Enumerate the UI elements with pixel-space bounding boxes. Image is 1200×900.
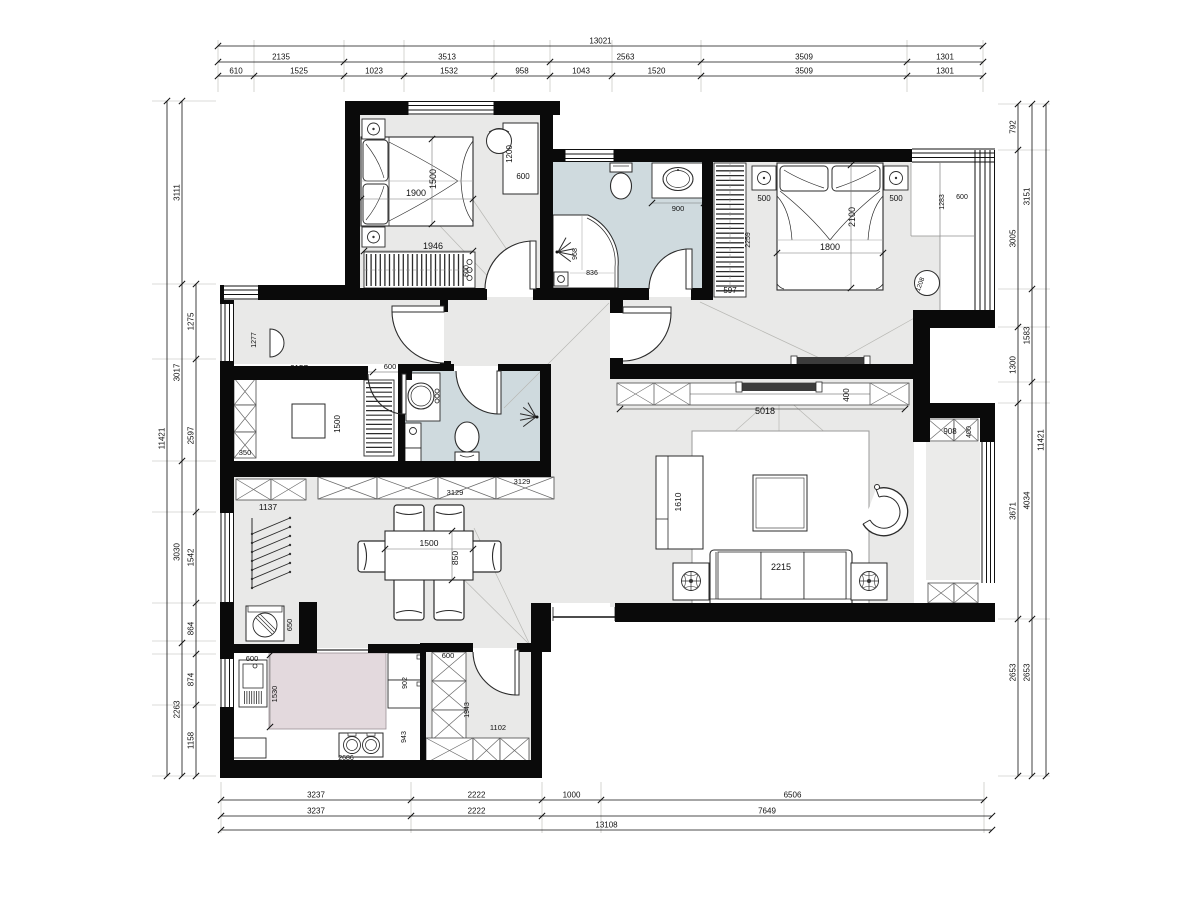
svg-text:6506: 6506 <box>784 791 802 800</box>
svg-text:3509: 3509 <box>795 67 813 76</box>
svg-text:11421: 11421 <box>158 427 167 449</box>
svg-text:5018: 5018 <box>755 406 775 416</box>
svg-text:3017: 3017 <box>173 363 182 381</box>
svg-text:600: 600 <box>956 194 968 201</box>
svg-text:500: 500 <box>889 194 903 203</box>
svg-text:1301: 1301 <box>936 67 954 76</box>
svg-text:3671: 3671 <box>1009 502 1018 520</box>
svg-text:850: 850 <box>450 551 460 565</box>
svg-text:2215: 2215 <box>771 562 791 572</box>
svg-text:11421: 11421 <box>1037 429 1046 451</box>
svg-text:2653: 2653 <box>1009 663 1018 681</box>
svg-text:3237: 3237 <box>307 791 325 800</box>
svg-text:650: 650 <box>285 619 294 632</box>
svg-text:597: 597 <box>723 286 737 295</box>
svg-text:1583: 1583 <box>1023 326 1032 344</box>
svg-text:864: 864 <box>187 621 196 635</box>
svg-text:2135: 2135 <box>272 53 290 62</box>
svg-text:3151: 3151 <box>1023 187 1032 205</box>
svg-text:902: 902 <box>402 677 409 689</box>
svg-text:1043: 1043 <box>572 67 590 76</box>
svg-text:1000: 1000 <box>563 791 581 800</box>
svg-text:400: 400 <box>842 388 851 402</box>
svg-text:968: 968 <box>572 248 579 260</box>
svg-text:600: 600 <box>384 362 397 371</box>
svg-text:3129: 3129 <box>514 477 531 486</box>
svg-text:3513: 3513 <box>438 53 456 62</box>
svg-text:1023: 1023 <box>365 67 383 76</box>
svg-text:1500: 1500 <box>420 538 439 548</box>
svg-text:1532: 1532 <box>440 67 458 76</box>
svg-text:2563: 2563 <box>617 53 635 62</box>
svg-text:350: 350 <box>239 448 252 457</box>
svg-text:1102: 1102 <box>490 723 506 732</box>
svg-text:836: 836 <box>586 270 598 277</box>
svg-text:1158: 1158 <box>187 731 196 749</box>
svg-text:900: 900 <box>672 204 685 213</box>
svg-text:3030: 3030 <box>173 543 182 561</box>
svg-text:600: 600 <box>464 265 471 277</box>
svg-text:1275: 1275 <box>187 312 196 330</box>
svg-text:2653: 2653 <box>1023 663 1032 681</box>
svg-text:1525: 1525 <box>290 67 308 76</box>
svg-text:600: 600 <box>246 654 259 663</box>
svg-text:13021: 13021 <box>589 37 612 46</box>
svg-text:3129: 3129 <box>447 488 464 497</box>
svg-text:7649: 7649 <box>758 807 776 816</box>
svg-text:2597: 2597 <box>187 426 196 444</box>
svg-text:1520: 1520 <box>648 67 666 76</box>
svg-text:792: 792 <box>1009 120 1018 134</box>
svg-text:1200: 1200 <box>505 145 514 163</box>
svg-text:2222: 2222 <box>468 807 486 816</box>
svg-text:1943: 1943 <box>464 702 471 718</box>
svg-text:943: 943 <box>401 731 408 743</box>
svg-text:3005: 3005 <box>1009 229 1018 247</box>
svg-text:1300: 1300 <box>1009 356 1018 374</box>
svg-text:1542: 1542 <box>187 548 196 566</box>
svg-text:1301: 1301 <box>936 53 954 62</box>
svg-text:13108: 13108 <box>595 821 618 830</box>
svg-text:2100: 2100 <box>847 207 857 227</box>
svg-text:1500: 1500 <box>428 169 438 189</box>
svg-text:1137: 1137 <box>259 502 278 512</box>
svg-text:1946: 1946 <box>423 241 443 251</box>
svg-text:600: 600 <box>516 172 530 181</box>
svg-text:400: 400 <box>966 426 973 438</box>
svg-text:1283: 1283 <box>939 194 946 210</box>
svg-text:1277: 1277 <box>251 332 258 348</box>
svg-text:610: 610 <box>229 67 243 76</box>
svg-text:2222: 2222 <box>468 791 486 800</box>
svg-text:908: 908 <box>943 427 957 436</box>
svg-text:2263: 2263 <box>173 700 182 718</box>
svg-text:2259: 2259 <box>745 232 752 248</box>
svg-text:3111: 3111 <box>173 184 182 201</box>
svg-text:600: 600 <box>442 651 455 660</box>
svg-text:3509: 3509 <box>795 53 813 62</box>
svg-text:874: 874 <box>187 672 196 686</box>
svg-text:1900: 1900 <box>406 188 426 198</box>
svg-text:1800: 1800 <box>820 242 840 252</box>
svg-text:1500: 1500 <box>333 415 342 433</box>
svg-text:4034: 4034 <box>1023 491 1032 509</box>
svg-text:500: 500 <box>757 194 771 203</box>
svg-text:1530: 1530 <box>270 686 279 703</box>
svg-text:958: 958 <box>515 67 529 76</box>
svg-text:3237: 3237 <box>307 807 325 816</box>
svg-text:1610: 1610 <box>673 492 683 511</box>
